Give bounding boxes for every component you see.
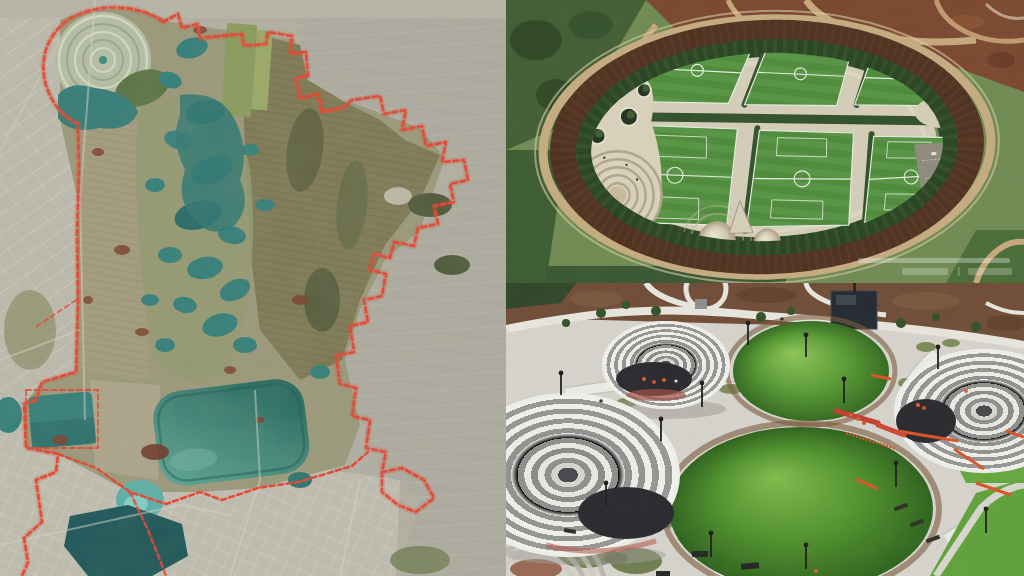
map-grain xyxy=(0,0,506,576)
striped-domes-park-panel xyxy=(506,283,1024,576)
sports-complex-render-panel xyxy=(506,0,1024,283)
satellite-map-panel xyxy=(0,0,506,576)
photo-grain xyxy=(506,283,1024,576)
photo-collage xyxy=(0,0,1024,576)
render-grain xyxy=(506,0,1024,283)
